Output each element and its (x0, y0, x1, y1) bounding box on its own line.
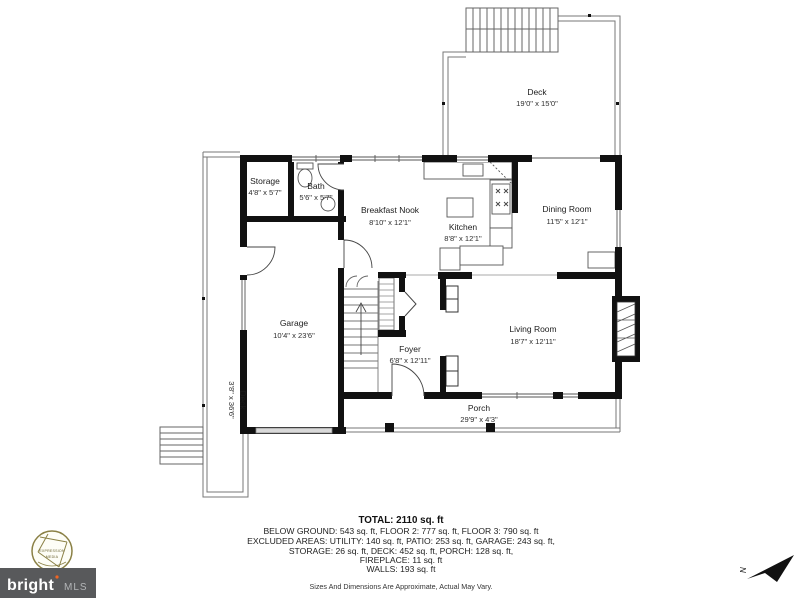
photographer-logo-line2: MEDIA (46, 555, 59, 559)
room-dims-kitchen: 8'8" x 12'1" (444, 234, 482, 243)
garage-deck-door (247, 247, 275, 275)
fireplace (612, 296, 640, 362)
summary-walls: WALLS: 193 sq. ft (367, 564, 437, 574)
area-summary: TOTAL: 2110 sq. ft BELOW GROUND: 543 sq.… (247, 515, 555, 591)
room-label-foyer: Foyer (399, 344, 421, 354)
room-dims-bath: 5'6" x 5'7" (299, 193, 333, 202)
room-label-kitchen: Kitchen (449, 222, 478, 232)
north-arrow-icon (747, 555, 794, 582)
summary-excluded-1: EXCLUDED AREAS: UTILITY: 140 sq. ft, PAT… (247, 536, 555, 546)
room-label-porch: Porch (468, 403, 490, 413)
room-label-breakfast-nook: Breakfast Nook (361, 205, 420, 215)
interior-stairs (344, 276, 378, 398)
floor-plan-page: Deck 19'0" x 15'0" Storage 4'8" x 5'7" B… (0, 0, 800, 600)
room-dims-porch: 29'9" x 4'3" (460, 415, 498, 424)
room-label-living-room: Living Room (509, 324, 556, 334)
room-dims-dining-room: 11'5" x 12'1" (546, 217, 587, 226)
room-dims-foyer: 6'8" x 12'11" (389, 356, 430, 365)
front-door (392, 364, 424, 396)
kitchen-fixtures (424, 162, 512, 270)
floor-plan-drawing: Deck 19'0" x 15'0" Storage 4'8" x 5'7" B… (0, 0, 800, 600)
room-label-deck-upper: Deck (527, 87, 547, 97)
room-label-deck-side: Deck (238, 390, 248, 410)
north-arrow: N (738, 555, 794, 582)
mls-logo-suffix: MLS (64, 582, 88, 593)
photographer-logo: EXPRESSION MEDIA (32, 531, 72, 571)
north-arrow-label: N (738, 567, 747, 573)
summary-total: TOTAL: 2110 sq. ft (358, 515, 444, 526)
room-dims-deck-upper: 19'0" x 15'0" (516, 99, 558, 108)
room-dims-living-room: 18'7" x 12'11" (510, 337, 556, 346)
room-dims-breakfast-nook: 8'10" x 12'1" (369, 218, 411, 227)
room-dims-deck-side: 3'8" x 36'6" (227, 381, 236, 419)
room-label-garage: Garage (280, 318, 309, 328)
mls-logo: bright MLS (0, 568, 96, 598)
living-room-builtins (446, 286, 458, 386)
upper-deck-stairs (466, 8, 558, 52)
room-label-dining-room: Dining Room (542, 204, 591, 214)
mls-logo-text: bright (7, 577, 54, 594)
side-deck-stairs (160, 427, 203, 464)
upper-deck-outline (443, 16, 620, 155)
room-dims-storage: 4'8" x 5'7" (248, 188, 282, 197)
summary-floors: BELOW GROUND: 543 sq. ft, FLOOR 2: 777 s… (263, 526, 539, 536)
dining-furniture (588, 252, 615, 268)
garage-door (256, 428, 332, 433)
room-label-bath: Bath (307, 181, 325, 191)
room-dims-garage: 10'4" x 23'6" (273, 331, 315, 340)
summary-disclaimer: Sizes And Dimensions Are Approximate, Ac… (309, 582, 492, 591)
photographer-logo-line1: EXPRESSION (39, 549, 65, 553)
mls-logo-accent-dot (55, 575, 58, 578)
room-label-storage: Storage (250, 176, 280, 186)
foyer-closet (379, 278, 416, 330)
stair-door (344, 240, 372, 268)
